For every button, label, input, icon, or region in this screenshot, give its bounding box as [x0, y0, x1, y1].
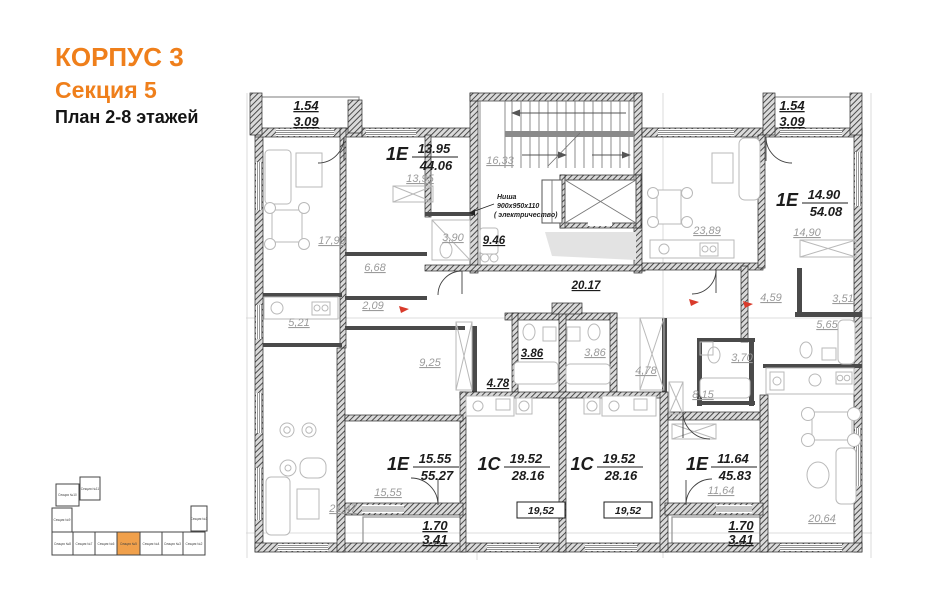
window [366, 129, 416, 136]
washing-machine [516, 398, 532, 414]
minimap-section-label: Секция №4 [143, 542, 160, 546]
svg-text:Ниша: Ниша [497, 194, 517, 201]
bathtub [566, 364, 610, 384]
svg-text:19,52: 19,52 [528, 505, 554, 517]
balcony-area-reduced: 1.54 [779, 98, 805, 113]
toilet-icon [440, 242, 452, 258]
window [780, 129, 842, 136]
sofa [836, 448, 856, 504]
armchair [300, 458, 326, 478]
minimap-section-label: Секция №10 [58, 493, 77, 497]
apartment-label: 1Е 15.55 55.27 [387, 451, 459, 483]
balcony-area-reduced: 1.70 [728, 518, 754, 533]
room-area-label: 3,86 [584, 347, 606, 359]
dining-table [812, 412, 852, 440]
apartment-total-area: 54.08 [810, 204, 843, 219]
balcony-area-reduced: 1.54 [293, 98, 319, 113]
toilet-icon [588, 324, 600, 340]
balcony-area-reduced: 1.70 [422, 518, 448, 533]
floor-plan-page: КОРПУС 3 Секция 5 План 2-8 этажей [0, 0, 941, 600]
balcony-label: 1.54 3.09 [779, 98, 805, 129]
room-area-label: 9,25 [419, 357, 441, 369]
room-area-label: 4,78 [635, 365, 657, 377]
window [278, 544, 328, 551]
room-area-label: 11,64 [708, 485, 735, 497]
apartment-total-area: 28.16 [511, 468, 545, 483]
window [276, 129, 334, 136]
window [716, 505, 752, 513]
window [487, 544, 539, 551]
dining-table [272, 210, 302, 242]
boxed-area-label: 19,52 [517, 502, 565, 518]
room-area-label: 21,47 [328, 503, 357, 515]
room-area-label: 3,70 [731, 352, 753, 364]
balcony-area-full: 3.41 [422, 532, 447, 547]
room-area-label: 3,90 [442, 232, 464, 244]
common-area-label: 20.17 [571, 280, 601, 292]
toilet-icon [523, 324, 535, 340]
balcony-label: 1.54 3.09 [293, 98, 319, 129]
apartment-type-label: 1Е [686, 454, 709, 474]
kitchen-counter [650, 240, 734, 258]
bathtub [514, 362, 558, 384]
balcony-area-full: 3.41 [728, 532, 753, 547]
section-minimap: Секция №10 Секция №11 Секция №9 Секция №… [52, 477, 208, 555]
apartment-label: 1С 19.52 28.16 [570, 451, 643, 483]
apartment-total-area: 45.83 [718, 468, 752, 483]
apartment-total-area: 55.27 [421, 468, 454, 483]
boxed-area-label: 19,52 [604, 502, 652, 518]
room-area-label: 13,95 [406, 173, 434, 185]
washing-machine [584, 398, 600, 414]
window [585, 544, 637, 551]
electric-mark-icon [689, 299, 699, 306]
svg-text:19,52: 19,52 [615, 505, 641, 517]
room-area-label: 20,64 [807, 513, 836, 525]
window [256, 305, 262, 339]
turntable [280, 460, 296, 476]
svg-text:900х950х110: 900х950х110 [497, 203, 539, 210]
common-area-label: 3.86 [521, 348, 544, 360]
room-area-label: 6,68 [364, 262, 386, 274]
balcony-area-full: 3.09 [779, 114, 805, 129]
window [855, 152, 861, 206]
balcony-label: 1.70 3.41 [422, 518, 448, 547]
common-area-label: 4.78 [486, 378, 510, 390]
apartment-type-label: 1Е [776, 190, 799, 210]
sink-icon [543, 327, 556, 341]
bathtub [838, 320, 855, 364]
walls-layer [250, 93, 862, 552]
balcony-label: 1.70 3.41 [728, 518, 754, 547]
svg-text:( электричество): ( электричество) [494, 212, 558, 219]
window [256, 393, 262, 433]
room-area-label: 23,89 [692, 225, 721, 237]
apartment-label: 1Е 13.95 44.06 [386, 141, 458, 173]
room-area-label: 14,90 [793, 227, 821, 239]
apartment-label: 1Е 11.64 45.83 [686, 451, 757, 483]
apartment-living-area: 19.52 [510, 451, 543, 466]
sink-icon [567, 327, 580, 341]
apartment-living-area: 19.52 [603, 451, 636, 466]
minimap-section-label: Секция №9 [54, 518, 71, 522]
room-area-label: 17,99 [318, 235, 346, 247]
minimap-section-label: Секция №1 [191, 517, 208, 521]
stove-icon [280, 423, 294, 437]
apartment-type-label: 1С [477, 454, 501, 474]
room-area-label: 15,55 [374, 487, 402, 499]
common-area-label: 9.46 [483, 235, 506, 247]
window [362, 505, 404, 513]
apartment-total-area: 44.06 [419, 158, 453, 173]
apartment-type-label: 1Е [386, 144, 409, 164]
apartment-living-area: 15.55 [419, 451, 452, 466]
window [658, 129, 734, 136]
sofa [739, 138, 760, 200]
labels-layer: 17,99 13,95 3,90 16,33 6,68 2,09 5,21 23… [288, 98, 853, 547]
apartment-label: 1Е 14.90 54.08 [776, 187, 848, 219]
dining-table [657, 190, 681, 224]
balcony-area-full: 3.09 [293, 114, 319, 129]
table [296, 153, 322, 187]
kitchen-counter [602, 396, 656, 416]
room-area-label: 5,65 [816, 319, 838, 331]
window [780, 544, 842, 551]
apartment-living-area: 11.64 [717, 451, 749, 466]
table [297, 489, 319, 519]
sofa [265, 150, 291, 204]
minimap-section-label: Секция №8 [54, 542, 71, 546]
stove-icon [302, 423, 316, 437]
apartment-living-area: 14.90 [808, 187, 841, 202]
table [712, 153, 733, 183]
sofa [266, 477, 290, 535]
sink-icon [822, 348, 836, 360]
electric-mark-icon [399, 306, 409, 313]
window [256, 468, 262, 520]
apartment-living-area: 13.95 [418, 141, 451, 156]
balcony-rails [256, 97, 861, 549]
room-area-label: 4,59 [760, 292, 781, 304]
room-area-label: 8,15 [692, 389, 714, 401]
minimap-section-label: Секция №11 [81, 487, 100, 491]
toilet-icon [800, 342, 812, 358]
apartment-type-label: 1С [570, 454, 594, 474]
table [807, 462, 829, 488]
room-area-label: 3,51 [832, 293, 853, 305]
minimap-section-label: Секция №2 [186, 542, 203, 546]
minimap-section-label: Секция №5 [120, 542, 137, 546]
minimap-section-label: Секция №7 [76, 542, 93, 546]
window [256, 162, 262, 210]
room-area-label: 5,21 [288, 317, 309, 329]
kitchen-counter [264, 297, 338, 319]
room-area-label: 2,09 [361, 300, 383, 312]
minimap-section-label: Секция №6 [98, 542, 115, 546]
apartment-type-label: 1Е [387, 454, 410, 474]
elevator-shaft [542, 180, 636, 260]
minimap-section-label: Секция №3 [164, 542, 181, 546]
apartment-label: 1С 19.52 28.16 [477, 451, 550, 483]
apartment-total-area: 28.16 [604, 468, 638, 483]
room-area-label: 16,33 [486, 155, 514, 167]
floor-plan-drawing: 17,99 13,95 3,90 16,33 6,68 2,09 5,21 23… [0, 0, 941, 600]
